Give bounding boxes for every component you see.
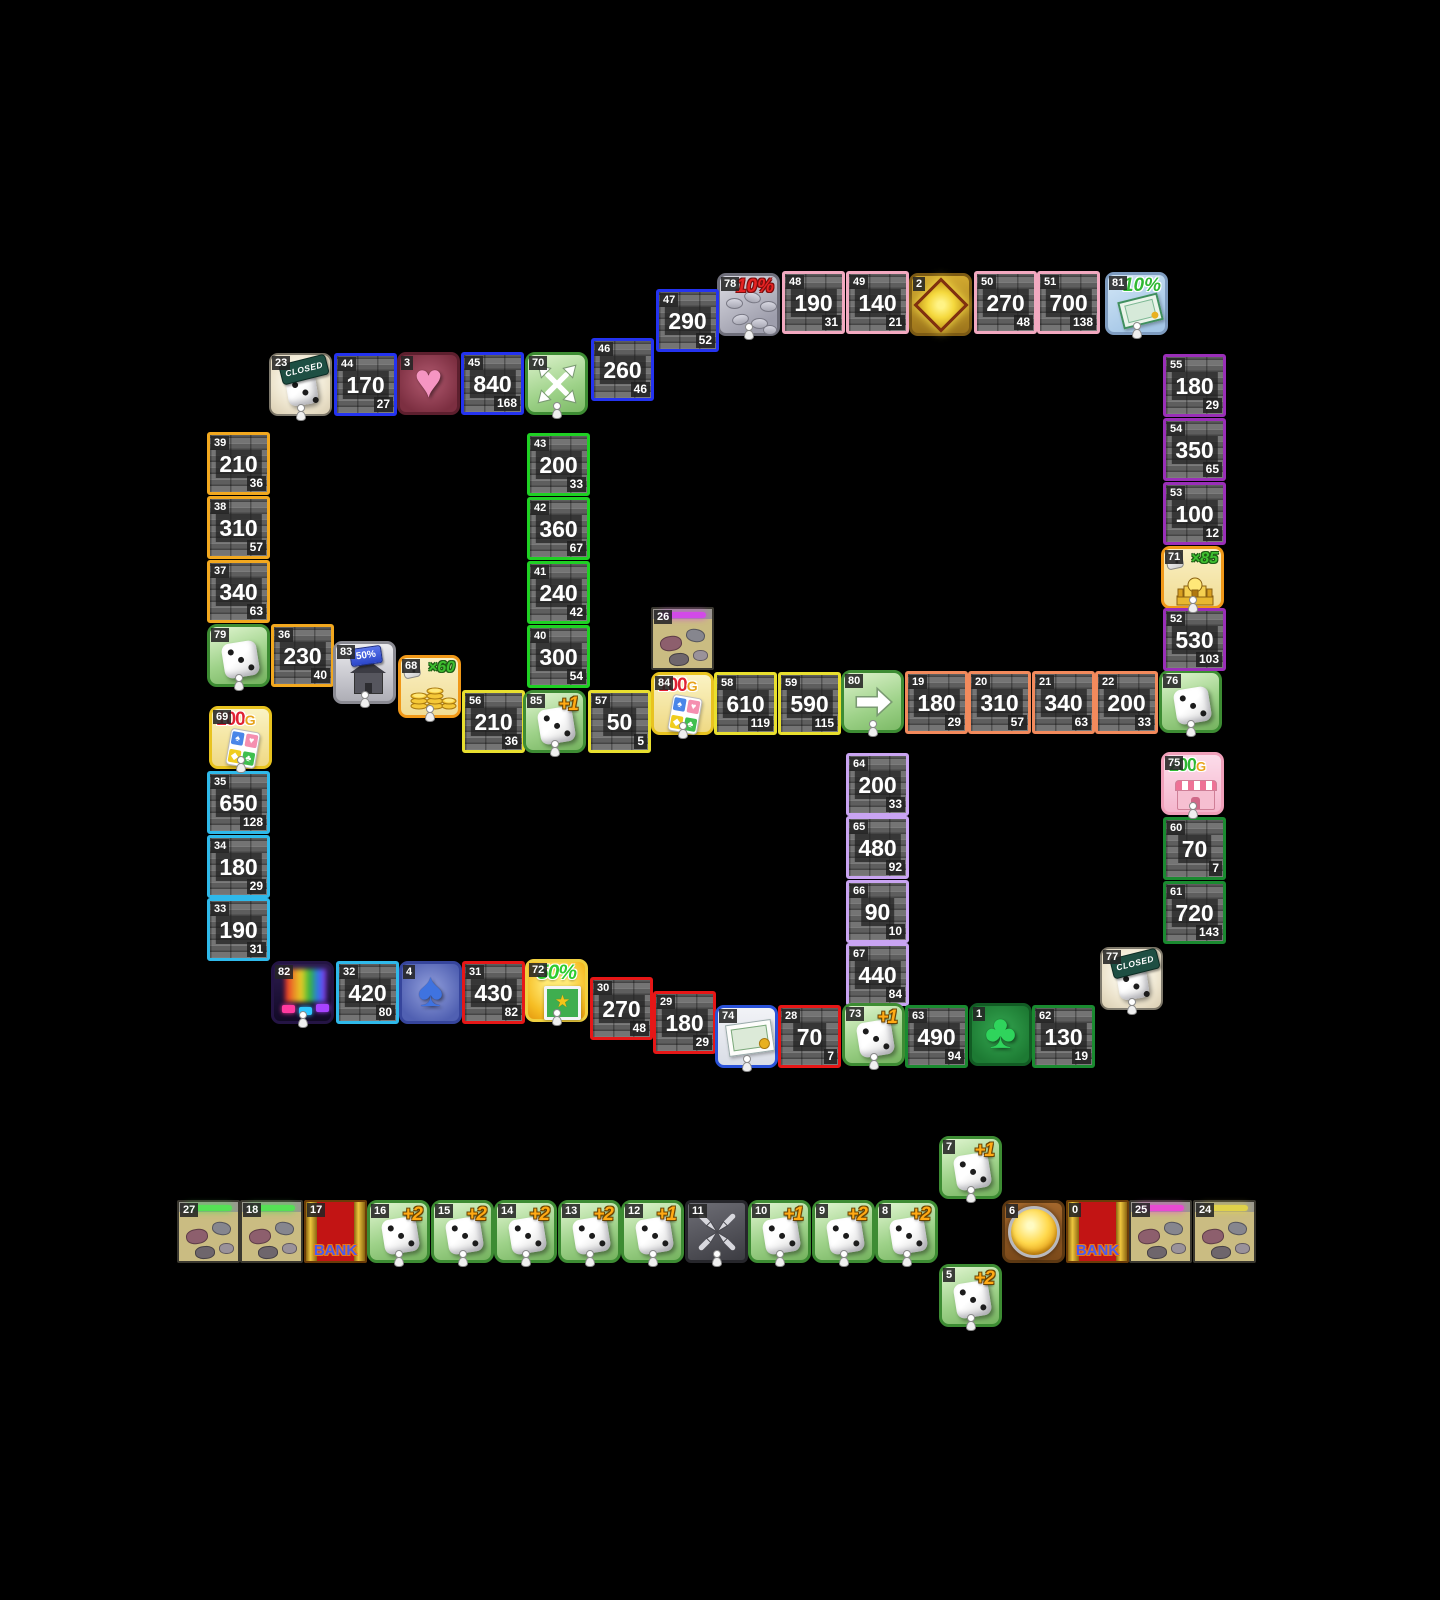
heart-tile-3[interactable]: ♥3 xyxy=(397,352,460,415)
tile-id-label: 84 xyxy=(655,676,673,690)
board-tile-41[interactable]: 2404241 xyxy=(527,561,590,624)
tile-id-label: 25 xyxy=(1132,1203,1150,1217)
tile-sub-value: 82 xyxy=(502,1005,521,1020)
die-pip xyxy=(1179,695,1186,702)
board-tile-39[interactable]: 2103639 xyxy=(207,432,270,495)
pawn-icon xyxy=(839,1250,849,1267)
spade-icon: ♠ xyxy=(418,967,444,1015)
tile-id-label: 46 xyxy=(595,342,613,356)
pawn-icon xyxy=(425,705,435,722)
die-pip xyxy=(970,1168,977,1175)
tile-value: 530 xyxy=(1171,626,1217,654)
dice-tile-16[interactable]: +216 xyxy=(367,1200,430,1263)
pawn-icon xyxy=(742,1055,752,1072)
pawn-icon xyxy=(1186,720,1196,737)
tile-sub-value: 48 xyxy=(630,1021,649,1036)
die-pip xyxy=(843,1232,850,1239)
tile-value: 200 xyxy=(535,451,581,479)
tile-id-label: 63 xyxy=(909,1009,927,1023)
tile-id-label: 19 xyxy=(909,675,927,689)
tile-id-label: 20 xyxy=(972,675,990,689)
stage-tile-82[interactable]: 82 xyxy=(271,961,334,1024)
dice-bonus-label: +2 xyxy=(402,1204,422,1226)
pawn-icon xyxy=(458,1250,468,1267)
board-tile-55[interactable]: 1802955 xyxy=(1163,354,1226,417)
die-pip xyxy=(312,397,319,404)
bank-label: BANK xyxy=(1076,1242,1119,1259)
button-tile-6[interactable]: 6 xyxy=(1002,1200,1065,1263)
arrows-in-tile-11[interactable]: 11 xyxy=(685,1200,748,1263)
die-pip xyxy=(462,1232,469,1239)
tile-id-label: 22 xyxy=(1099,675,1117,689)
tile-sub-value: 36 xyxy=(502,734,521,749)
pawn-icon xyxy=(1188,596,1198,613)
diamond-tile-2[interactable]: 2 xyxy=(909,273,972,336)
stone-icon xyxy=(1211,1245,1232,1259)
pawn-icon xyxy=(394,1250,404,1267)
house-discount-tile-83[interactable]: 50%83 xyxy=(333,641,396,704)
tile-value: 480 xyxy=(854,834,900,862)
tile-sub-value: 138 xyxy=(1070,315,1096,330)
tile-sub-value: 29 xyxy=(247,879,266,894)
pawn-icon xyxy=(712,1250,722,1267)
tile-value: 420 xyxy=(344,979,390,1007)
pawn-icon xyxy=(744,323,754,340)
pawn-icon xyxy=(1132,322,1142,339)
tile-id-label: 27 xyxy=(180,1203,198,1217)
multiplier-label: ×60 xyxy=(428,659,455,677)
tile-sub-value: 42 xyxy=(567,605,586,620)
board-tile-56[interactable]: 2103656 xyxy=(462,690,525,753)
tile-sub-value: 29 xyxy=(693,1035,712,1050)
club-tile-1[interactable]: ♣1 xyxy=(969,1003,1032,1066)
die-pip xyxy=(589,1232,596,1239)
star-screen-icon: ★ xyxy=(544,986,581,1020)
tile-sub-value: 168 xyxy=(494,396,520,411)
tile-value: 490 xyxy=(913,1023,959,1051)
dice-bonus-label: +2 xyxy=(593,1204,613,1226)
die-pip xyxy=(895,1225,902,1232)
tile-id-label: 82 xyxy=(275,965,293,979)
pawn-icon xyxy=(868,720,878,737)
tile-id-label: 71 xyxy=(1165,550,1183,564)
dice-tile-85[interactable]: +185 xyxy=(523,690,586,753)
dice-tile-9[interactable]: +29 xyxy=(812,1200,875,1263)
board-tile-51[interactable]: 70013851 xyxy=(1037,271,1100,334)
tile-value: 210 xyxy=(470,708,516,736)
banknote-icon xyxy=(725,1019,775,1057)
arrow-right-tile-80[interactable]: 80 xyxy=(841,670,904,733)
die-pip xyxy=(916,1240,923,1247)
tile-value: 200 xyxy=(854,771,900,799)
board-tile-61[interactable]: 72014361 xyxy=(1163,881,1226,944)
dice-bonus-label: +1 xyxy=(558,694,578,716)
tile-id-label: 17 xyxy=(307,1203,325,1217)
die-pip xyxy=(980,1304,987,1311)
board-tile-49[interactable]: 1402149 xyxy=(846,271,909,334)
tile-value: 610 xyxy=(722,690,768,718)
dice-bonus-label: +1 xyxy=(783,1204,803,1226)
coin-icon xyxy=(726,298,743,309)
tile-id-label: 73 xyxy=(846,1007,864,1021)
board-tile-65[interactable]: 4809265 xyxy=(846,816,909,879)
board-tile-32[interactable]: 4208032 xyxy=(336,961,399,1024)
tile-id-label: 53 xyxy=(1167,486,1185,500)
die-pip xyxy=(398,1232,405,1239)
tile-value: 180 xyxy=(661,1009,707,1037)
board-tile-20[interactable]: 3105720 xyxy=(968,671,1031,734)
board-tile-53[interactable]: 1001253 xyxy=(1163,482,1226,545)
tile-sub-value: 12 xyxy=(1203,526,1222,541)
tile-value: 190 xyxy=(215,916,261,944)
tile-id-label: 21 xyxy=(1036,675,1054,689)
die-pip xyxy=(1190,702,1197,709)
dice-tile-8[interactable]: +28 xyxy=(875,1200,938,1263)
tile-id-label: 41 xyxy=(531,565,549,579)
die-pip xyxy=(959,1289,966,1296)
tile-id-label: 35 xyxy=(211,775,229,789)
stone-icon xyxy=(1235,1243,1250,1254)
board-tile-58[interactable]: 61011958 xyxy=(714,672,777,735)
tile-id-label: 55 xyxy=(1167,358,1185,372)
die-pip xyxy=(779,1232,786,1239)
die-pip xyxy=(970,1296,977,1303)
tile-id-label: 65 xyxy=(850,820,868,834)
tile-value: 360 xyxy=(535,515,581,543)
stone-icon xyxy=(211,1220,232,1236)
tile-id-label: 0 xyxy=(1069,1203,1081,1217)
pawn-icon xyxy=(360,691,370,708)
percent-bill-tile-81[interactable]: 10%81 xyxy=(1105,272,1168,335)
tile-id-label: 23 xyxy=(272,356,290,370)
rubble-tile-25[interactable]: 25 xyxy=(1129,1200,1192,1263)
tile-value: 130 xyxy=(1040,1023,1086,1051)
board-tile-40[interactable]: 3005440 xyxy=(527,625,590,688)
tile-sub-value: 46 xyxy=(631,382,650,397)
tile-id-label: 43 xyxy=(531,437,549,451)
board-tile-57[interactable]: 50557 xyxy=(588,690,651,753)
tile-id-label: 80 xyxy=(845,674,863,688)
dice-tile-5[interactable]: +25 xyxy=(939,1264,1002,1327)
tile-sub-value: 57 xyxy=(1008,715,1027,730)
tile-id-label: 66 xyxy=(850,884,868,898)
stone-icon xyxy=(1227,1220,1248,1236)
dice-tile-14[interactable]: +214 xyxy=(494,1200,557,1263)
board-tile-22[interactable]: 2003322 xyxy=(1095,671,1158,734)
currency-label: G xyxy=(245,712,255,728)
mult-palace-tile-71[interactable]: ×8571 xyxy=(1161,546,1224,609)
tile-value: 210 xyxy=(215,450,261,478)
tile-id-label: 72 xyxy=(529,963,547,977)
board-tile-31[interactable]: 4308231 xyxy=(462,961,525,1024)
dice-tile-73[interactable]: +173 xyxy=(842,1003,905,1066)
tile-id-label: 2 xyxy=(913,277,925,291)
tile-id-label: 75 xyxy=(1165,756,1183,770)
board-tile-34[interactable]: 1802934 xyxy=(207,835,270,898)
multiplier-label: ×85 xyxy=(1191,550,1218,568)
die-pip xyxy=(883,1043,890,1050)
club-icon: ♣ xyxy=(985,1009,1017,1057)
tile-id-label: 37 xyxy=(211,564,229,578)
tile-id-label: 15 xyxy=(435,1204,453,1218)
die-pip xyxy=(959,1161,966,1168)
die-pip xyxy=(578,1225,585,1232)
coin-icon xyxy=(760,301,777,312)
tile-id-label: 48 xyxy=(786,275,804,289)
tile-id-label: 4 xyxy=(403,965,415,979)
stone-icon xyxy=(1171,1243,1186,1254)
tile-id-label: 47 xyxy=(660,293,678,307)
die-pip xyxy=(227,649,234,656)
arrows-out-tile-70[interactable]: 70 xyxy=(525,352,588,415)
bank-tile-17[interactable]: BANK17 xyxy=(304,1200,367,1263)
board-tile-38[interactable]: 3105738 xyxy=(207,496,270,559)
tile-id-label: 62 xyxy=(1036,1009,1054,1023)
pawn-icon xyxy=(234,674,244,691)
tile-id-label: 16 xyxy=(371,1204,389,1218)
bank-label: BANK xyxy=(314,1242,357,1259)
stone-icon xyxy=(274,1220,295,1236)
heart-icon: ♥ xyxy=(414,358,443,406)
tile-id-label: 81 xyxy=(1109,276,1127,290)
tile-value: 230 xyxy=(279,642,325,670)
dice-tile-76[interactable]: 76 xyxy=(1159,670,1222,733)
tile-id-label: 11 xyxy=(689,1204,707,1218)
tile-id-label: 39 xyxy=(211,436,229,450)
tile-id-label: 40 xyxy=(531,629,549,643)
tile-id-label: 60 xyxy=(1167,821,1185,835)
pawn-icon xyxy=(902,1250,912,1267)
tile-sub-value: 94 xyxy=(945,1049,964,1064)
tile-id-label: 44 xyxy=(338,357,356,371)
tile-value: 840 xyxy=(469,370,515,398)
tile-id-label: 70 xyxy=(529,356,547,370)
die-pip xyxy=(543,715,550,722)
die-pip xyxy=(387,1225,394,1232)
die-pip xyxy=(472,1240,479,1247)
die-pip xyxy=(535,1240,542,1247)
die-pip xyxy=(873,1035,880,1042)
board-tile-52[interactable]: 53010352 xyxy=(1163,608,1226,671)
tile-value: 440 xyxy=(854,961,900,989)
bank-tile-0[interactable]: BANK0 xyxy=(1066,1200,1129,1263)
dice-closed-tile-23[interactable]: CLOSED23 xyxy=(269,353,332,416)
dice-tile-12[interactable]: +112 xyxy=(621,1200,684,1263)
tile-sub-value: 143 xyxy=(1196,925,1222,940)
tile-id-label: 6 xyxy=(1006,1204,1018,1218)
board-tile-48[interactable]: 1903148 xyxy=(782,271,845,334)
stone-icon xyxy=(685,627,706,643)
dice-bonus-label: +2 xyxy=(974,1268,994,1290)
tile-id-label: 64 xyxy=(850,757,868,771)
pawn-icon xyxy=(775,1250,785,1267)
tile-id-label: 78 xyxy=(721,277,739,291)
tile-id-label: 12 xyxy=(625,1204,643,1218)
tile-sub-value: 29 xyxy=(945,715,964,730)
tile-value: 720 xyxy=(1171,899,1217,927)
tile-id-label: 45 xyxy=(465,356,483,370)
percent-label: 10% xyxy=(736,276,774,298)
tile-id-label: 57 xyxy=(592,694,610,708)
die-pip xyxy=(980,1176,987,1183)
tile-id-label: 31 xyxy=(466,965,484,979)
die-pip xyxy=(238,656,245,663)
tile-value: 270 xyxy=(982,289,1028,317)
tile-sub-value: 48 xyxy=(1014,315,1033,330)
pawn-icon xyxy=(585,1250,595,1267)
board-tile-19[interactable]: 1802919 xyxy=(905,671,968,734)
board-tile-21[interactable]: 3406321 xyxy=(1032,671,1095,734)
board-tile-54[interactable]: 3506554 xyxy=(1163,418,1226,481)
board-tile-33[interactable]: 1903133 xyxy=(207,898,270,961)
tile-id-label: 28 xyxy=(782,1009,800,1023)
tile-id-label: 83 xyxy=(337,645,355,659)
spade-tile-4[interactable]: ♠4 xyxy=(399,961,462,1024)
tile-id-label: 29 xyxy=(657,995,675,1009)
tile-id-label: 51 xyxy=(1041,275,1059,289)
stone-icon xyxy=(219,1243,234,1254)
tile-sub-value: 31 xyxy=(247,942,266,957)
cards-bonus-tile-84[interactable]: 100G♠♥◆♣84 xyxy=(651,672,714,735)
percent-coins-tile-78[interactable]: 10%78 xyxy=(717,273,780,336)
tile-sub-value: 7 xyxy=(824,1049,837,1064)
tile-id-label: 58 xyxy=(718,676,736,690)
dice-bonus-label: +2 xyxy=(847,1204,867,1226)
tile-sub-value: 119 xyxy=(748,716,773,731)
stone-icon xyxy=(1147,1245,1168,1259)
mult-coins-tile-68[interactable]: ×6068 xyxy=(398,655,461,718)
board-tile-37[interactable]: 3406337 xyxy=(207,560,270,623)
board-tile-66[interactable]: 901066 xyxy=(846,880,909,943)
pawn-icon xyxy=(552,1009,562,1026)
percent-label: 10% xyxy=(1123,275,1161,297)
tile-value: 290 xyxy=(664,307,710,335)
stone-icon xyxy=(659,635,683,653)
board-tile-59[interactable]: 59011559 xyxy=(778,672,841,735)
rubble-tile-26[interactable]: 26 xyxy=(651,607,714,670)
tile-id-label: 36 xyxy=(275,628,293,642)
board-tile-30[interactable]: 2704830 xyxy=(590,977,653,1040)
rubble-tile-18[interactable]: 18 xyxy=(240,1200,303,1263)
board-tile-50[interactable]: 2704850 xyxy=(974,271,1037,334)
tile-id-label: 61 xyxy=(1167,885,1185,899)
tile-value: 260 xyxy=(599,356,645,384)
tile-id-label: 30 xyxy=(594,981,612,995)
board-tile-36[interactable]: 2304036 xyxy=(271,624,334,687)
star-discount-tile-72[interactable]: 50%★72 xyxy=(525,959,588,1022)
board-tile-63[interactable]: 4909463 xyxy=(905,1005,968,1068)
tile-sub-value: 31 xyxy=(822,315,841,330)
stone-icon xyxy=(258,1245,279,1259)
stone-icon xyxy=(1163,1220,1184,1236)
die-pip xyxy=(768,1225,775,1232)
die-pip xyxy=(853,1240,860,1247)
board-tile-47[interactable]: 2905247 xyxy=(656,289,719,352)
board-tile-29[interactable]: 1802929 xyxy=(653,991,716,1054)
tile-sub-value: 36 xyxy=(247,476,266,491)
dice-tile-15[interactable]: +215 xyxy=(431,1200,494,1263)
tile-value: 270 xyxy=(598,995,644,1023)
pawn-icon xyxy=(1127,998,1137,1015)
board-tile-67[interactable]: 4408467 xyxy=(846,943,909,1006)
board-tile-35[interactable]: 65012835 xyxy=(207,771,270,834)
tile-value: 340 xyxy=(1040,689,1086,717)
tile-value: 310 xyxy=(215,514,261,542)
board-tile-60[interactable]: 70760 xyxy=(1163,817,1226,880)
shop-bonus-tile-75[interactable]: 200G75 xyxy=(1161,752,1224,815)
tile-value: 430 xyxy=(470,979,516,1007)
board-tile-62[interactable]: 1301962 xyxy=(1032,1005,1095,1068)
tile-value: 70 xyxy=(1178,835,1212,863)
tile-sub-value: 5 xyxy=(634,734,647,749)
tile-sub-value: 10 xyxy=(886,924,905,939)
board-tile-43[interactable]: 2003343 xyxy=(527,433,590,496)
die-pip xyxy=(408,1240,415,1247)
pawn-icon xyxy=(298,1011,308,1028)
board-tile-28[interactable]: 70728 xyxy=(778,1005,841,1068)
tile-sub-value: 33 xyxy=(567,477,586,492)
dice-tile-13[interactable]: +213 xyxy=(558,1200,621,1263)
tile-id-label: 76 xyxy=(1163,674,1181,688)
pawn-icon xyxy=(869,1053,879,1070)
tile-id-label: 1 xyxy=(973,1007,985,1021)
banknote-tile-74[interactable]: 74 xyxy=(715,1005,778,1068)
board-tile-64[interactable]: 2003364 xyxy=(846,753,909,816)
tile-id-label: 38 xyxy=(211,500,229,514)
dice-bonus-label: +2 xyxy=(910,1204,930,1226)
dice-closed-tile-77[interactable]: CLOSED77 xyxy=(1100,947,1163,1010)
game-board: 10%7819031481402149227048507001385110%81… xyxy=(0,0,1440,1600)
neon-bar-icon xyxy=(282,1005,295,1013)
tile-id-label: 59 xyxy=(782,676,800,690)
stone-icon xyxy=(693,650,708,661)
tile-sub-value: 7 xyxy=(1209,861,1222,876)
stone-icon xyxy=(195,1245,216,1259)
dice-bonus-label: +2 xyxy=(466,1204,486,1226)
dice-tile-79[interactable]: 79 xyxy=(207,624,270,687)
tile-sub-value: 103 xyxy=(1196,652,1222,667)
tile-value: 50 xyxy=(603,708,637,736)
rubble-tile-27[interactable]: 27 xyxy=(177,1200,240,1263)
tile-value: 140 xyxy=(854,289,900,317)
tile-sub-value: 63 xyxy=(247,604,266,619)
coin-icon xyxy=(763,325,777,335)
board-tile-46[interactable]: 2604646 xyxy=(591,338,654,401)
die-pip xyxy=(1133,983,1140,990)
die-pip xyxy=(641,1225,648,1232)
die-pip xyxy=(789,1240,796,1247)
tile-sub-value: 21 xyxy=(886,315,905,330)
rubble-tile-24[interactable]: 24 xyxy=(1193,1200,1256,1263)
cards-bonus-tile-69[interactable]: 100G♠♥◆♣69 xyxy=(209,706,272,769)
board-tile-42[interactable]: 3606742 xyxy=(527,497,590,560)
board-tile-45[interactable]: 84016845 xyxy=(461,352,524,415)
tile-id-label: 7 xyxy=(943,1140,955,1154)
tile-value: 200 xyxy=(1103,689,1149,717)
die-pip xyxy=(832,1225,839,1232)
tile-sub-value: 33 xyxy=(1135,715,1154,730)
tile-value: 180 xyxy=(215,853,261,881)
dice-tile-7[interactable]: +17 xyxy=(939,1136,1002,1199)
board-tile-44[interactable]: 1702744 xyxy=(334,353,397,416)
tile-id-label: 8 xyxy=(879,1204,891,1218)
die-pip xyxy=(302,389,309,396)
tile-value: 650 xyxy=(215,789,261,817)
tile-value: 70 xyxy=(793,1023,827,1051)
tile-value: 300 xyxy=(535,643,581,671)
pawn-icon xyxy=(236,756,246,773)
dice-tile-10[interactable]: +110 xyxy=(748,1200,811,1263)
